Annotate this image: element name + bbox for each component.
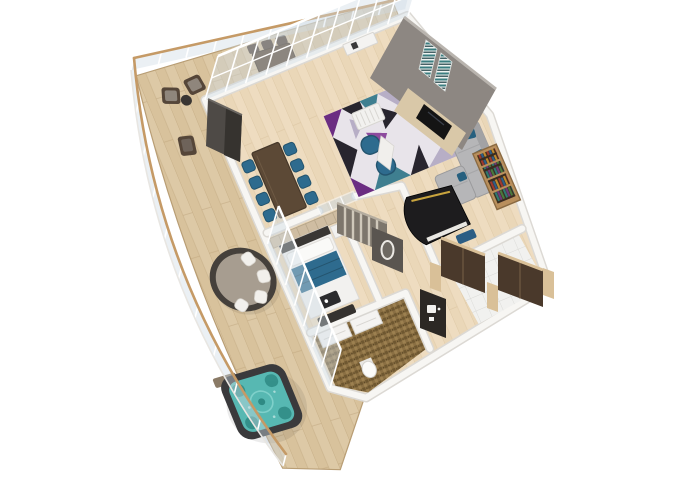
coffee-machine-icon	[427, 305, 436, 313]
beige-trim-pillar	[430, 262, 441, 292]
floor-plan-canvas: 3D floor plan of a luxury suite with wra…	[0, 0, 680, 486]
beige-trim-pillar	[543, 268, 554, 299]
oval-mirror	[382, 241, 394, 259]
beige-trim-pillar	[487, 282, 498, 312]
floor-plan-stage: 3D floor plan of a luxury suite with wra…	[0, 0, 680, 486]
minibar-cup-icon	[429, 317, 434, 321]
armchair-cushion	[165, 90, 178, 101]
